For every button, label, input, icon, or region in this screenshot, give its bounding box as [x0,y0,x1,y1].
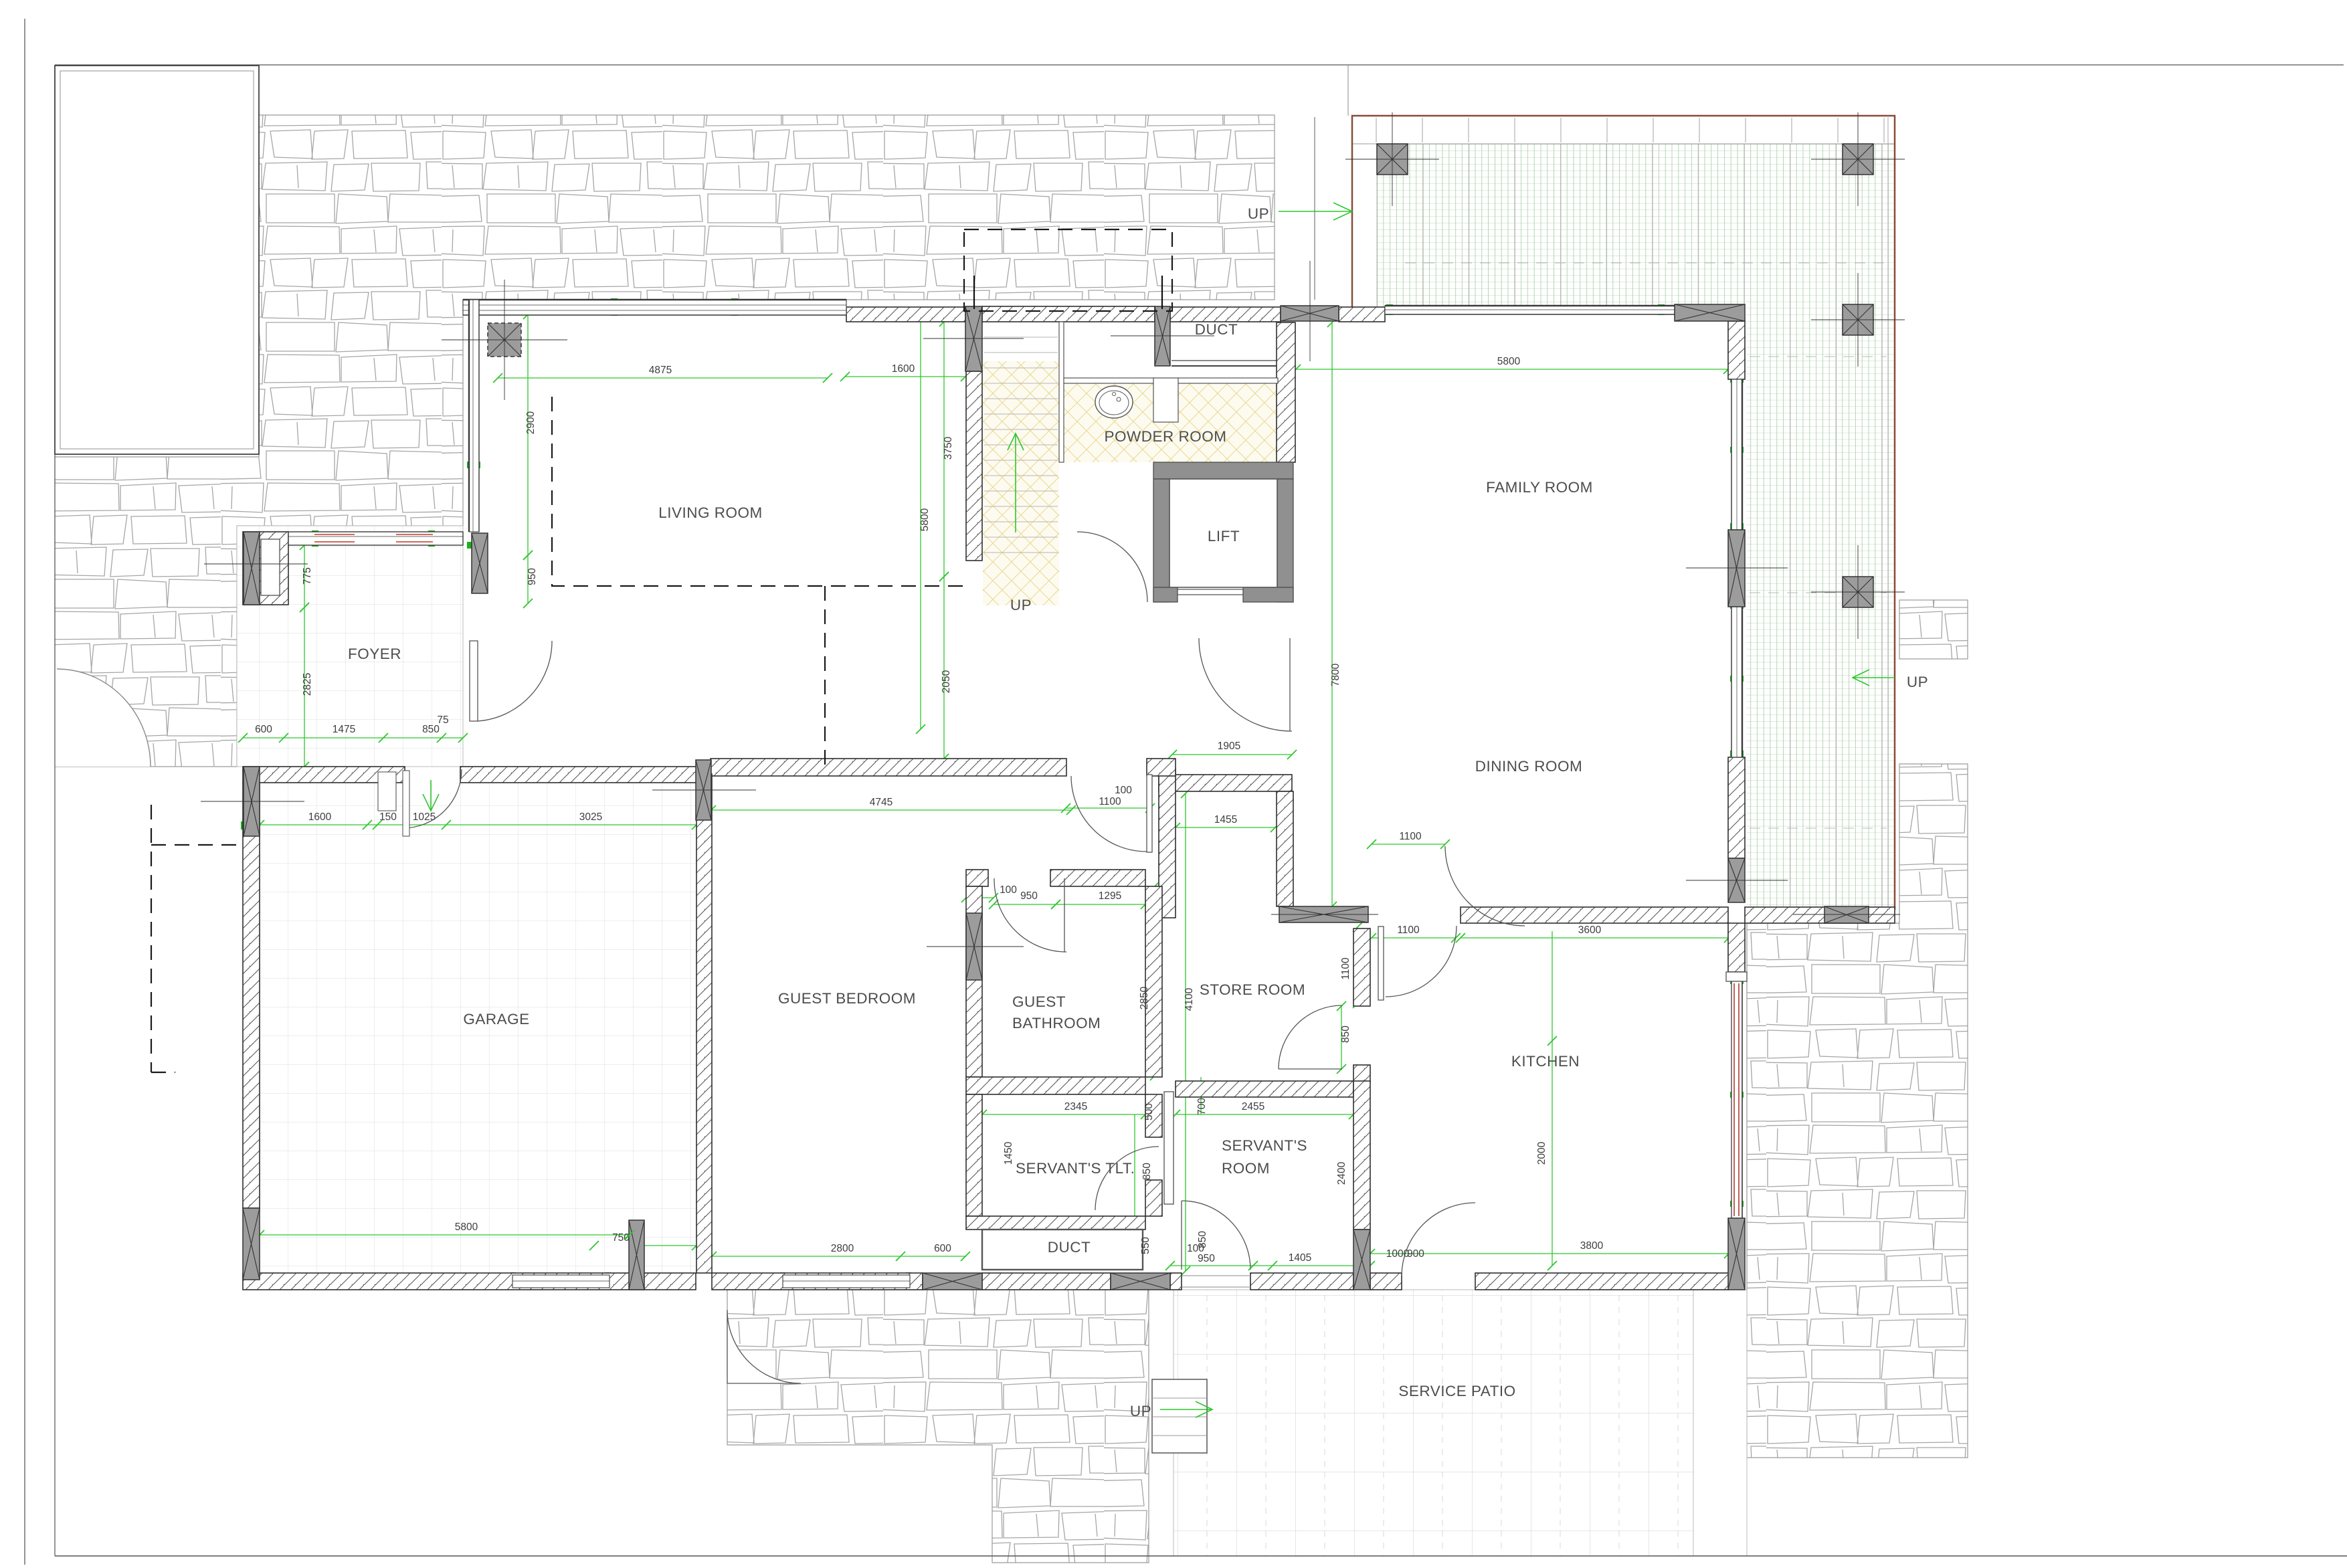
svg-text:KITCHEN: KITCHEN [1511,1053,1580,1070]
svg-text:850: 850 [1141,1163,1153,1180]
svg-text:75: 75 [437,714,448,726]
svg-text:LIFT: LIFT [1208,528,1240,545]
svg-text:UP: UP [1130,1403,1151,1419]
svg-text:1455: 1455 [1214,814,1237,825]
svg-text:5800: 5800 [1497,356,1521,367]
svg-text:950: 950 [1020,890,1038,902]
svg-text:100: 100 [1000,884,1017,896]
svg-text:STORE ROOM: STORE ROOM [1200,981,1305,998]
svg-text:2050: 2050 [941,670,952,693]
svg-text:UP: UP [1248,205,1269,222]
svg-text:1100: 1100 [1397,924,1420,936]
svg-text:5800: 5800 [919,508,931,531]
svg-text:2825: 2825 [302,673,313,696]
svg-text:3025: 3025 [579,811,602,823]
svg-text:FAMILY ROOM: FAMILY ROOM [1486,479,1593,496]
svg-text:1025: 1025 [413,811,436,823]
svg-text:DINING ROOM: DINING ROOM [1475,758,1583,775]
svg-text:1450: 1450 [1003,1141,1014,1165]
svg-text:775: 775 [302,567,313,585]
svg-text:DUCT: DUCT [1048,1239,1091,1256]
svg-text:DUCT: DUCT [1195,321,1238,338]
svg-text:150: 150 [379,811,397,823]
svg-text:3800: 3800 [1580,1240,1604,1252]
svg-text:2000: 2000 [1536,1141,1547,1165]
svg-text:600: 600 [255,724,272,735]
svg-text:1100: 1100 [1340,957,1351,980]
svg-text:850: 850 [1197,1231,1208,1248]
svg-text:1100: 1100 [1099,796,1121,807]
svg-text:4100: 4100 [1184,987,1195,1011]
svg-text:500: 500 [1143,1103,1155,1120]
svg-text:4745: 4745 [870,797,893,808]
svg-text:GUEST BEDROOM: GUEST BEDROOM [778,990,916,1007]
svg-text:GARAGE: GARAGE [463,1011,529,1027]
svg-text:UP: UP [1907,674,1928,690]
svg-text:POWDER ROOM: POWDER ROOM [1105,428,1227,445]
svg-text:GUEST: GUEST [1012,993,1066,1010]
svg-text:FOYER: FOYER [348,646,401,662]
svg-text:1475: 1475 [333,724,355,735]
svg-text:7800: 7800 [1330,663,1341,686]
svg-text:1905: 1905 [1218,741,1240,752]
svg-text:ROOM: ROOM [1222,1160,1270,1177]
svg-text:100: 100 [1115,785,1132,796]
svg-text:SERVANT'S TLT.: SERVANT'S TLT. [1016,1160,1135,1177]
svg-text:2900: 2900 [525,411,537,434]
svg-text:600: 600 [934,1243,951,1254]
svg-text:3750: 3750 [943,436,954,460]
svg-text:550: 550 [1140,1237,1151,1254]
svg-text:900: 900 [1407,1248,1424,1260]
svg-text:BATHROOM: BATHROOM [1012,1015,1101,1032]
svg-text:2800: 2800 [831,1243,854,1254]
svg-text:950: 950 [1198,1253,1215,1264]
svg-text:1000: 1000 [1386,1248,1410,1260]
svg-text:2345: 2345 [1064,1101,1087,1112]
svg-text:3600: 3600 [1578,924,1602,936]
svg-text:5800: 5800 [455,1221,478,1233]
svg-text:950: 950 [527,568,538,585]
svg-text:1100: 1100 [1399,831,1422,842]
svg-text:UP: UP [1010,597,1032,613]
svg-text:1295: 1295 [1099,890,1121,902]
svg-text:SERVICE PATIO: SERVICE PATIO [1398,1383,1515,1399]
svg-text:2850: 2850 [1139,986,1150,1009]
svg-text:850: 850 [1340,1025,1351,1043]
svg-text:1405: 1405 [1289,1252,1311,1264]
svg-text:LIVING ROOM: LIVING ROOM [658,504,763,521]
svg-text:1600: 1600 [892,363,915,375]
svg-text:1600: 1600 [308,811,332,823]
svg-text:2400: 2400 [1336,1161,1347,1185]
svg-text:4875: 4875 [649,365,672,376]
svg-text:SERVANT'S: SERVANT'S [1222,1137,1307,1154]
svg-text:700: 700 [1196,1098,1208,1115]
svg-text:2455: 2455 [1242,1101,1264,1112]
